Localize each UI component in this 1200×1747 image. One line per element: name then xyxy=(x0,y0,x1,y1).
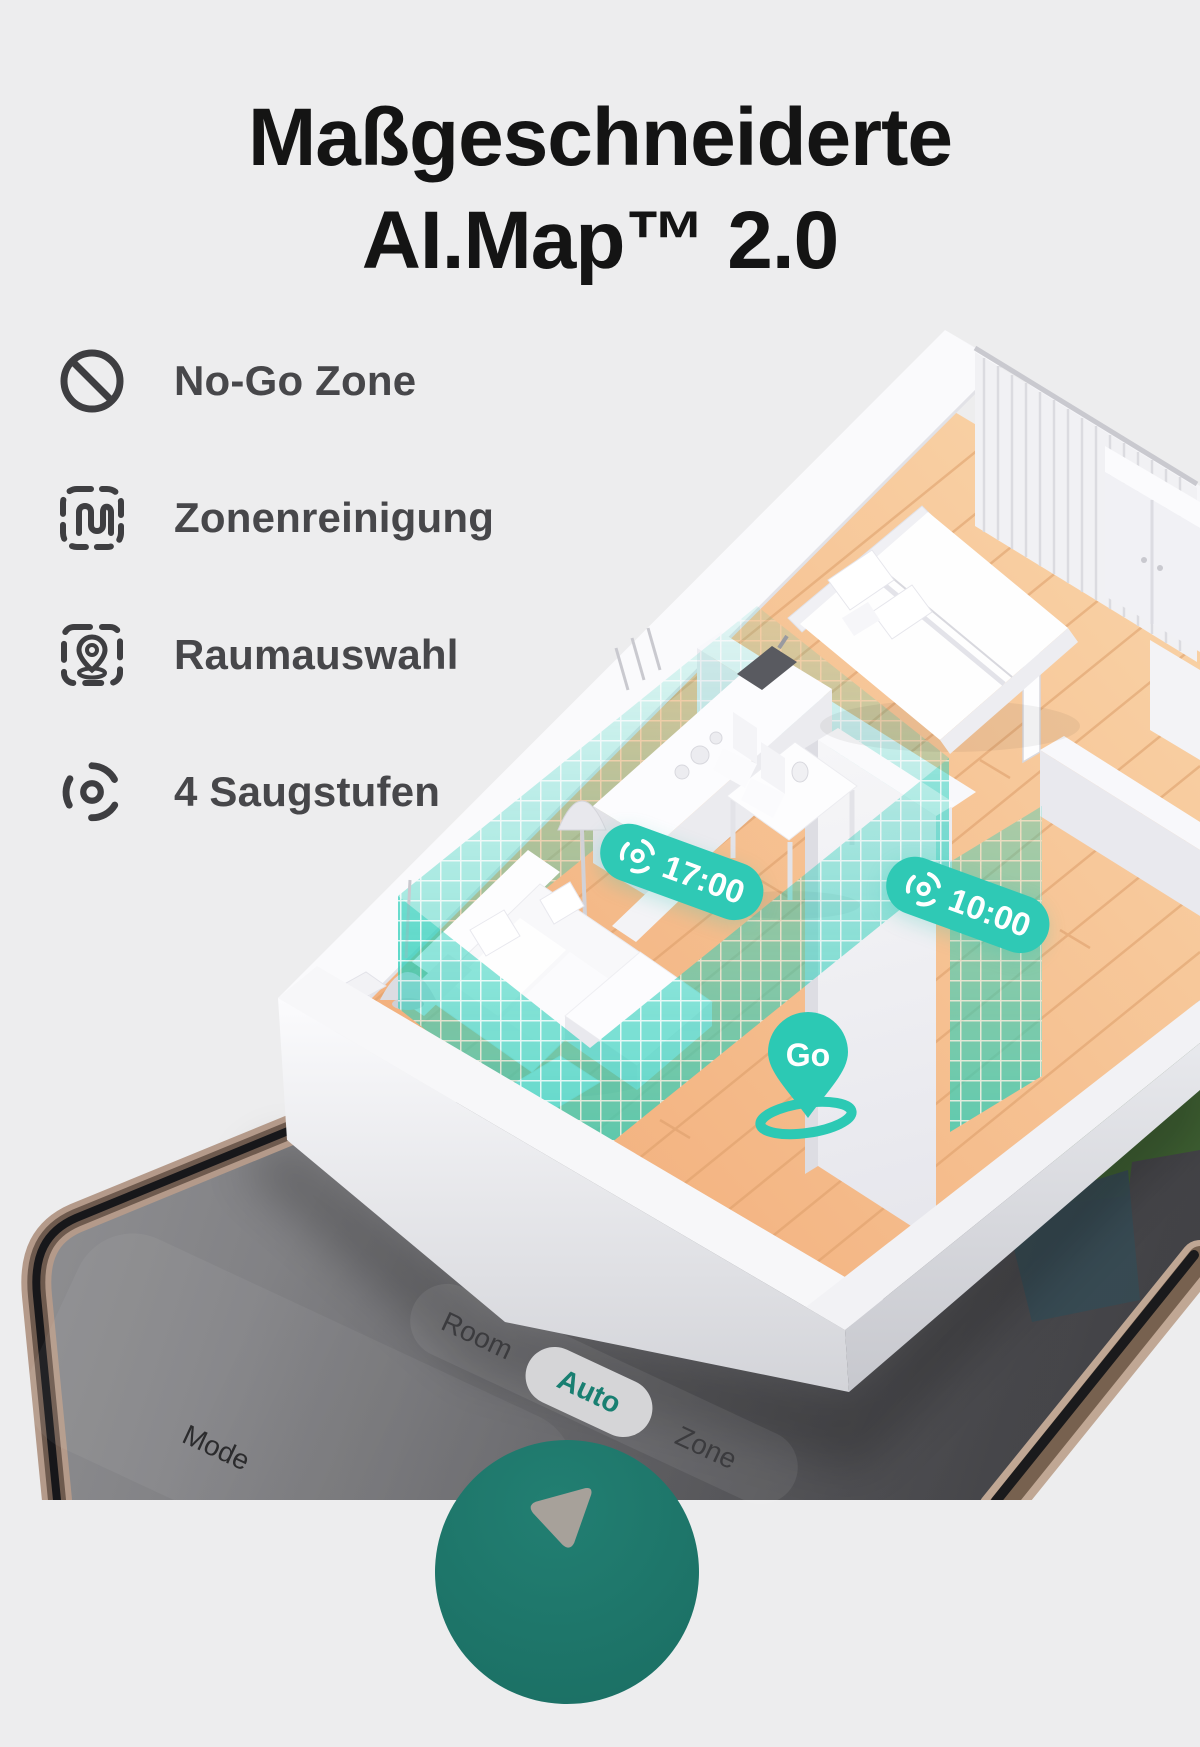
title-line-2: AI.Map™ 2.0 xyxy=(0,189,1200,292)
feature-no-go-zone: No-Go Zone xyxy=(56,338,494,424)
feature-room-selection: Raumauswahl xyxy=(56,612,494,698)
feature-label: No-Go Zone xyxy=(174,357,416,405)
no-go-icon xyxy=(56,345,128,417)
cyclone-icon xyxy=(901,866,947,912)
room-selection-icon xyxy=(56,619,128,691)
feature-list: No-Go Zone Zonenreinigung Raumauswahl 4 … xyxy=(56,338,494,886)
go-pin-label: Go xyxy=(786,1037,830,1073)
title-line-1: Maßgeschneiderte xyxy=(0,86,1200,189)
feature-zone-cleaning: Zonenreinigung xyxy=(56,475,494,561)
feature-suction-levels: 4 Saugstufen xyxy=(56,749,494,835)
feature-label: 4 Saugstufen xyxy=(174,768,440,816)
page-title: Maßgeschneiderte AI.Map™ 2.0 xyxy=(0,86,1200,293)
suction-levels-icon xyxy=(56,756,128,828)
feature-label: Zonenreinigung xyxy=(174,494,494,542)
feature-label: Raumauswahl xyxy=(174,631,459,679)
zone-cleaning-icon xyxy=(56,482,128,554)
cyclone-icon xyxy=(615,833,661,879)
